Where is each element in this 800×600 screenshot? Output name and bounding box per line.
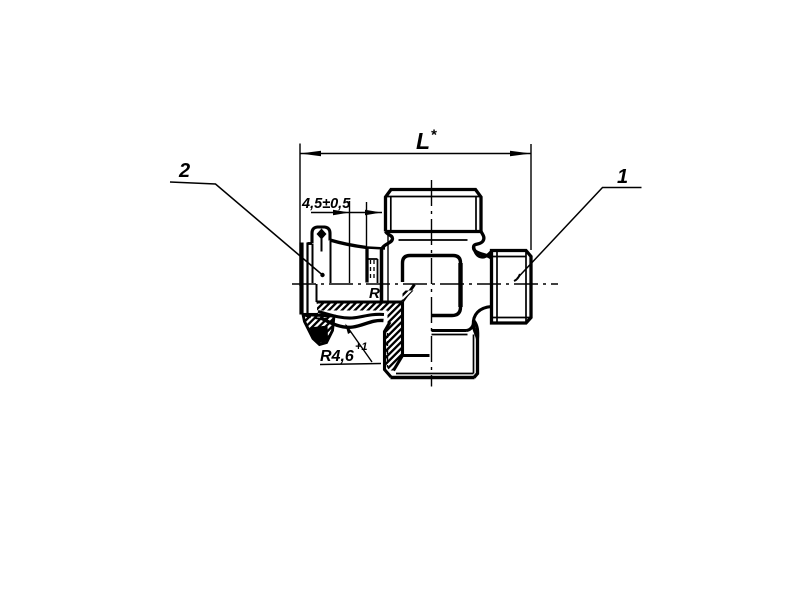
svg-text:4,5±0,5: 4,5±0,5 — [301, 196, 351, 212]
svg-text:R: R — [369, 285, 380, 302]
svg-text:R4,6: R4,6 — [320, 348, 354, 365]
svg-text:2: 2 — [178, 160, 190, 182]
svg-text:1: 1 — [617, 166, 628, 188]
svg-text:L: L — [416, 128, 430, 154]
